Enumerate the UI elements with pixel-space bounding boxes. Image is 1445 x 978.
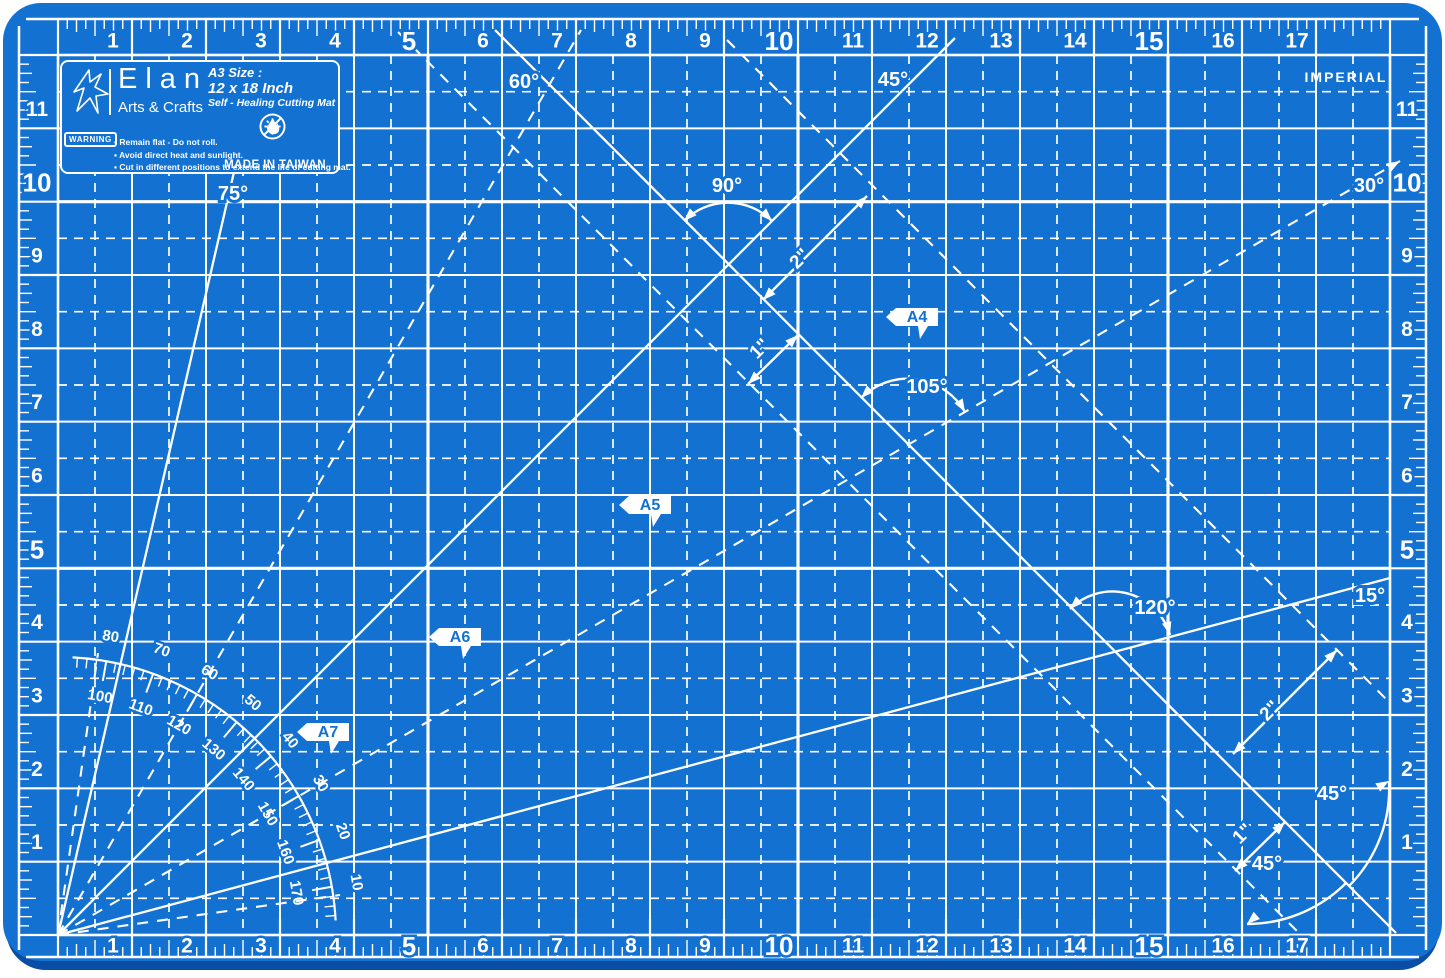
ruler-number: 14 <box>1063 30 1087 53</box>
angle-label: 45° <box>1317 783 1347 805</box>
angle-label: 15° <box>1355 585 1385 607</box>
brand-name: Elan <box>118 63 208 96</box>
ruler-number: 12 <box>915 30 938 53</box>
ruler-number: 9 <box>699 935 711 958</box>
ruler-number: 8 <box>625 935 637 958</box>
unit-system-label: IMPERIAL <box>1298 69 1394 85</box>
ruler-number: 4 <box>31 611 43 634</box>
ruler-number: 2 <box>31 758 43 781</box>
ruler-number: 3 <box>31 685 43 708</box>
ruler-number: 10 <box>23 168 52 198</box>
ruler-number: 10 <box>765 26 794 56</box>
ruler-number: 3 <box>255 30 267 53</box>
logo-panel: Elan Arts & Crafts A3 Size : 12 x 18 Inc… <box>60 60 340 174</box>
size-value: 12 x 18 Inch <box>208 80 335 97</box>
ruler-number: 4 <box>1401 611 1413 634</box>
ruler-number: 5 <box>1400 534 1414 564</box>
size-flag-label: A7 <box>318 724 339 741</box>
ruler-number: 10 <box>1393 168 1422 198</box>
size-flag-label: A4 <box>907 309 928 326</box>
size-title: A3 Size : <box>208 65 335 80</box>
ruler-number: 13 <box>989 30 1012 53</box>
protractor-degree-label: 10 <box>347 873 367 892</box>
protractor-degree-label: 80 <box>101 627 120 647</box>
ruler-number: 5 <box>402 26 416 56</box>
ruler-number: 16 <box>1211 935 1234 958</box>
angle-label: 75° <box>218 183 248 205</box>
warning-badge: WARNING <box>64 132 117 147</box>
ruler-number: 5 <box>402 931 416 961</box>
angle-label: 45° <box>1252 853 1282 875</box>
ruler-number: 8 <box>625 30 637 53</box>
ruler-number: 14 <box>1063 935 1087 958</box>
ruler-number: 12 <box>915 935 938 958</box>
ruler-number: 4 <box>329 30 341 53</box>
ruler-number: 2 <box>1401 758 1413 781</box>
ruler-number: 11 <box>842 935 865 958</box>
size-flag-label: A5 <box>640 497 661 514</box>
ruler-number: 1 <box>1401 831 1413 854</box>
ruler-number: 6 <box>477 30 489 53</box>
ruler-number: 15 <box>1135 931 1164 961</box>
ruler-number: 17 <box>1285 935 1308 958</box>
ruler-number: 13 <box>989 935 1012 958</box>
angle-label: 30° <box>1354 175 1384 197</box>
ruler-number: 15 <box>1135 26 1164 56</box>
made-in-label: MADE IN TAIWAN <box>212 159 338 171</box>
ruler-number: 8 <box>31 318 43 341</box>
angle-label: 90° <box>712 175 742 197</box>
ruler-number: 8 <box>1401 318 1413 341</box>
ruler-number: 2 <box>181 935 193 958</box>
brand-tagline: Arts & Crafts <box>118 99 203 116</box>
size-info: A3 Size : 12 x 18 Inch Self - Healing Cu… <box>208 65 335 110</box>
ruler-number: 6 <box>477 935 489 958</box>
angle-label: 105° <box>906 376 947 398</box>
ruler-number: 1 <box>107 30 119 53</box>
ruler-number: 2 <box>181 30 193 53</box>
ruler-number: 17 <box>1285 30 1308 53</box>
ruler-number: 9 <box>1401 245 1413 268</box>
ruler-number: 9 <box>31 245 43 268</box>
angle-label: 120° <box>1134 597 1175 619</box>
ruler-number: 11 <box>26 98 49 121</box>
ruler-number: 16 <box>1211 30 1234 53</box>
ruler-number: 11 <box>1396 98 1419 121</box>
ruler-number: 1 <box>107 935 119 958</box>
ruler-number: 4 <box>329 935 341 958</box>
ruler-number: 3 <box>1401 685 1413 708</box>
ruler-number: 7 <box>1401 391 1413 414</box>
ruler-number: 6 <box>31 465 43 488</box>
warning-item: Remain flat - Do not roll. <box>114 136 351 149</box>
ruler-number: 9 <box>699 30 711 53</box>
size-flag-label: A6 <box>450 629 471 646</box>
ruler-number: 5 <box>30 534 44 564</box>
ruler-number: 11 <box>842 30 865 53</box>
ruler-number: 1 <box>31 831 43 854</box>
ruler-number: 7 <box>551 30 563 53</box>
product-name: Self - Healing Cutting Mat <box>208 97 335 110</box>
logo-divider <box>109 69 111 115</box>
ruler-number: 7 <box>551 935 563 958</box>
angle-label: 60° <box>509 71 539 93</box>
ruler-number: 6 <box>1401 465 1413 488</box>
angle-label: 45° <box>878 69 908 91</box>
ruler-number: 3 <box>255 935 267 958</box>
cutting-mat-product-image: 8070605040302010100110120130140150160170… <box>0 0 1445 978</box>
ruler-number: 10 <box>765 931 794 961</box>
ruler-number: 7 <box>31 391 43 414</box>
